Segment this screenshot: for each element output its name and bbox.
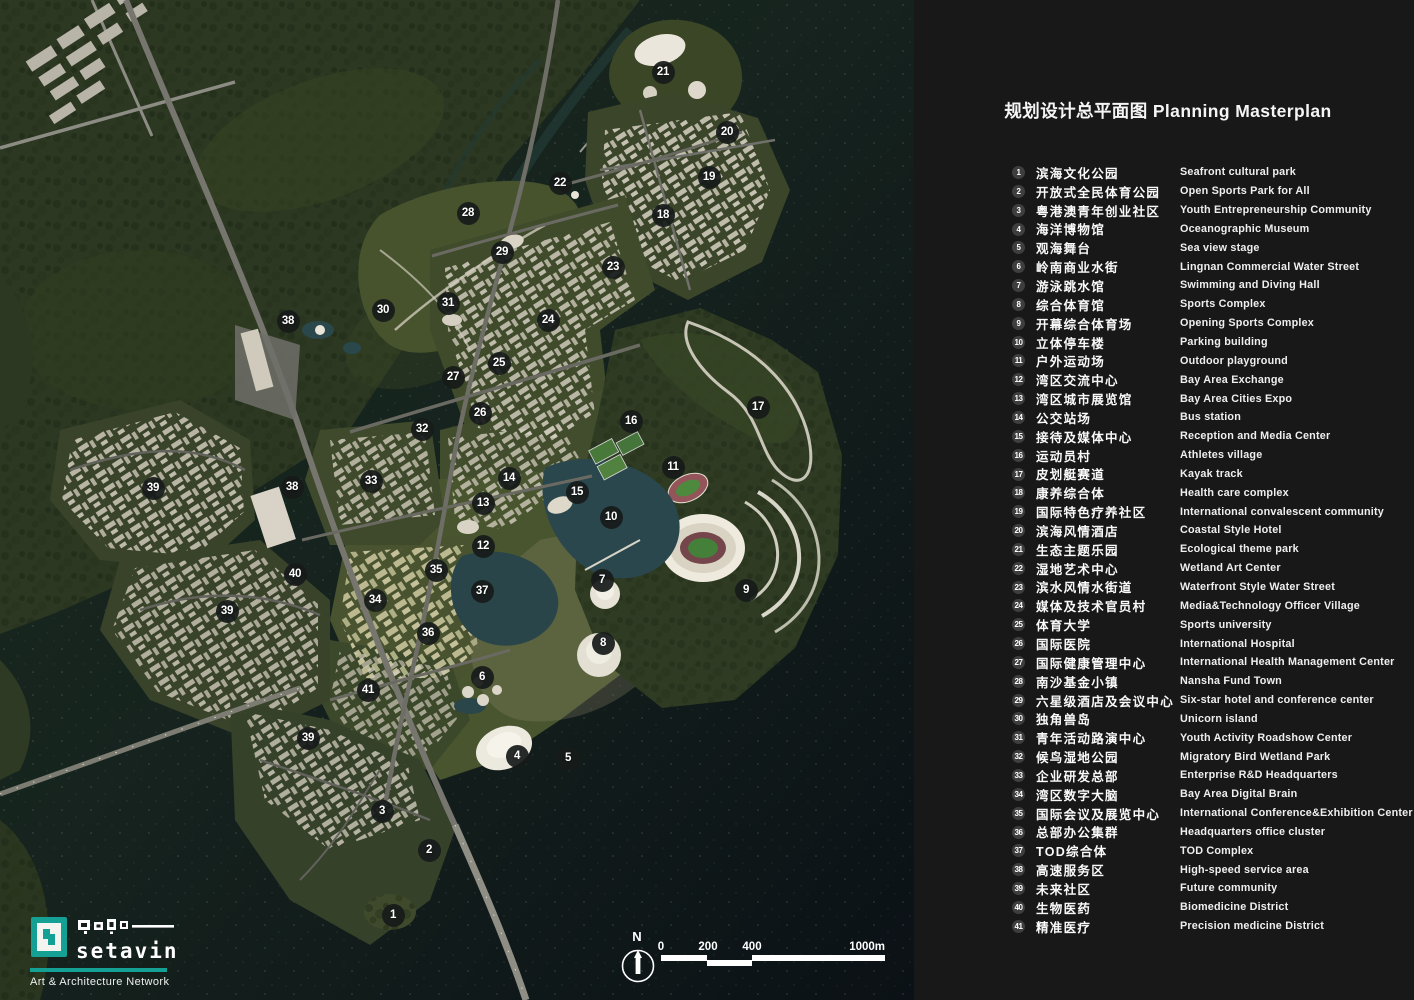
logo-wordmark: setavin <box>76 941 179 962</box>
legend-number-badge: 25 <box>1012 618 1025 631</box>
legend-name-zh: 企业研发总部 <box>1036 766 1119 785</box>
legend-name-en: Seafront cultural park <box>1180 166 1296 178</box>
legend-name-zh: 未来社区 <box>1036 879 1091 898</box>
legend-row: 6岭南商业水街Lingnan Commercial Water Street <box>914 257 1414 276</box>
legend-number-badge: 20 <box>1012 524 1025 537</box>
legend-list: 1滨海文化公园Seafront cultural park2开放式全民体育公园O… <box>914 163 1414 936</box>
legend-name-en: Oceanographic Museum <box>1180 223 1309 235</box>
legend-name-en: Parking building <box>1180 336 1268 348</box>
legend-name-en: TOD Complex <box>1180 845 1253 857</box>
map-marker-16: 16 <box>620 410 643 433</box>
legend-name-zh: 总部办公集群 <box>1036 822 1119 841</box>
legend-row: 11户外运动场Outdoor playground <box>914 351 1414 370</box>
legend-name-en: Youth Entrepreneurship Community <box>1180 204 1372 216</box>
legend-name-en: Youth Activity Roadshow Center <box>1180 732 1352 744</box>
legend-row: 23滨水风情水街道Waterfront Style Water Street <box>914 578 1414 597</box>
legend-row: 9开幕综合体育场Opening Sports Complex <box>914 314 1414 333</box>
legend-number-badge: 11 <box>1012 354 1025 367</box>
map-marker-7: 7 <box>591 569 614 592</box>
legend-row: 8综合体育馆Sports Complex <box>914 295 1414 314</box>
legend-name-zh: 皮划艇赛道 <box>1036 464 1105 483</box>
scale-bar: 0 200 400 1000m <box>653 938 893 977</box>
legend-row: 31青年活动路演中心Youth Activity Roadshow Center <box>914 728 1414 747</box>
svg-text:1000m: 1000m <box>849 941 885 953</box>
legend-number-badge: 3 <box>1012 204 1025 217</box>
legend-row: 26国际医院International Hospital <box>914 634 1414 653</box>
map-marker-23: 23 <box>602 256 625 279</box>
legend-name-zh: 国际健康管理中心 <box>1036 653 1146 672</box>
legend-number-badge: 28 <box>1012 675 1025 688</box>
legend-row: 16运动员村Athletes village <box>914 446 1414 465</box>
legend-number-badge: 27 <box>1012 656 1025 669</box>
legend-row: 15接待及媒体中心Reception and Media Center <box>914 427 1414 446</box>
legend-name-en: International convalescent community <box>1180 506 1384 518</box>
legend-row: 3粤港澳青年创业社区Youth Entrepreneurship Communi… <box>914 201 1414 220</box>
legend-number-badge: 4 <box>1012 223 1025 236</box>
legend-name-zh: 体育大学 <box>1036 615 1091 634</box>
legend-name-zh: 滨海风情酒店 <box>1036 521 1119 540</box>
legend-row: 5观海舞台Sea view stage <box>914 238 1414 257</box>
legend-name-en: Media&Technology Officer Village <box>1180 600 1360 612</box>
legend-name-zh: 康养综合体 <box>1036 483 1105 502</box>
north-arrow: N <box>618 928 658 993</box>
svg-text:200: 200 <box>698 941 717 953</box>
legend-row: 33企业研发总部Enterprise R&D Headquarters <box>914 766 1414 785</box>
legend-number-badge: 6 <box>1012 260 1025 273</box>
legend-name-en: International Conference&Exhibition Cent… <box>1180 807 1413 819</box>
logo-icon <box>30 916 68 963</box>
legend-name-zh: 滨水风情水街道 <box>1036 577 1133 596</box>
legend-name-zh: 观海舞台 <box>1036 238 1091 257</box>
legend-number-badge: 34 <box>1012 788 1025 801</box>
legend-row: 27国际健康管理中心International Health Managemen… <box>914 653 1414 672</box>
legend-name-en: Opening Sports Complex <box>1180 317 1314 329</box>
legend-name-en: Sports university <box>1180 619 1272 631</box>
legend-number-badge: 10 <box>1012 336 1025 349</box>
legend-name-en: Athletes village <box>1180 449 1262 461</box>
map-marker-27: 27 <box>442 366 465 389</box>
map-marker-39: 39 <box>142 477 165 500</box>
legend-row: 40生物医药Biomedicine District <box>914 898 1414 917</box>
legend-name-zh: 粤港澳青年创业社区 <box>1036 201 1160 220</box>
legend-name-en: Ecological theme park <box>1180 543 1299 555</box>
legend-number-badge: 12 <box>1012 373 1025 386</box>
legend-name-en: Headquarters office cluster <box>1180 826 1325 838</box>
legend-name-zh: 综合体育馆 <box>1036 295 1105 314</box>
map-marker-39: 39 <box>297 727 320 750</box>
legend-number-badge: 9 <box>1012 317 1025 330</box>
map-marker-35: 35 <box>425 559 448 582</box>
map-marker-17: 17 <box>747 396 770 419</box>
legend-name-zh: 运动员村 <box>1036 446 1091 465</box>
legend-name-zh: 国际医院 <box>1036 634 1091 653</box>
svg-text:0: 0 <box>658 941 664 953</box>
legend-name-en: Bay Area Exchange <box>1180 374 1284 386</box>
legend-number-badge: 15 <box>1012 430 1025 443</box>
legend-number-badge: 36 <box>1012 826 1025 839</box>
masterplan-poster: 1234567891011121314151617181920212223242… <box>0 0 1414 1000</box>
legend-name-en: Waterfront Style Water Street <box>1180 581 1335 593</box>
legend-name-zh: 岭南商业水街 <box>1036 257 1119 276</box>
logo-tagline: Art & Architecture Network <box>30 976 240 988</box>
legend-panel: 规划设计总平面图 Planning Masterplan 1滨海文化公园Seaf… <box>914 0 1414 1000</box>
map-illustration <box>0 0 914 1000</box>
legend-row: 34湾区数字大脑Bay Area Digital Brain <box>914 785 1414 804</box>
legend-row: 2开放式全民体育公园Open Sports Park for All <box>914 182 1414 201</box>
map-marker-38: 38 <box>281 476 304 499</box>
legend-name-zh: 候鸟湿地公园 <box>1036 747 1119 766</box>
legend-row: 13湾区城市展览馆Bay Area Cities Expo <box>914 389 1414 408</box>
logo: setavin Art & Architecture Network <box>30 916 240 988</box>
legend-name-zh: 湾区城市展览馆 <box>1036 389 1133 408</box>
legend-row: 1滨海文化公园Seafront cultural park <box>914 163 1414 182</box>
map-marker-31: 31 <box>437 292 460 315</box>
legend-name-en: Bus station <box>1180 411 1241 423</box>
legend-name-zh: 滨海文化公园 <box>1036 163 1119 182</box>
map-marker-40: 40 <box>284 563 307 586</box>
legend-row: 20滨海风情酒店Coastal Style Hotel <box>914 521 1414 540</box>
legend-name-en: Bay Area Cities Expo <box>1180 393 1292 405</box>
legend-number-badge: 17 <box>1012 468 1025 481</box>
legend-name-zh: 开放式全民体育公园 <box>1036 182 1160 201</box>
legend-name-en: Future community <box>1180 882 1277 894</box>
legend-row: 17皮划艇赛道Kayak track <box>914 465 1414 484</box>
map-marker-21: 21 <box>652 61 675 84</box>
legend-name-zh: 生物医药 <box>1036 898 1091 917</box>
legend-number-badge: 24 <box>1012 599 1025 612</box>
map-marker-3: 3 <box>371 800 394 823</box>
legend-row: 19国际特色疗养社区International convalescent com… <box>914 502 1414 521</box>
map-marker-30: 30 <box>372 299 395 322</box>
legend-row: 39未来社区Future community <box>914 879 1414 898</box>
map-marker-2: 2 <box>418 839 441 862</box>
legend-row: 12湾区交流中心Bay Area Exchange <box>914 370 1414 389</box>
legend-name-en: Precision medicine District <box>1180 920 1324 932</box>
legend-number-badge: 22 <box>1012 562 1025 575</box>
legend-row: 37TOD综合体TOD Complex <box>914 841 1414 860</box>
north-label: N <box>632 929 641 944</box>
legend-row: 38高速服务区High-speed service area <box>914 860 1414 879</box>
map-marker-41: 41 <box>357 679 380 702</box>
legend-number-badge: 26 <box>1012 637 1025 650</box>
legend-name-zh: 游泳跳水馆 <box>1036 276 1105 295</box>
legend-number-badge: 33 <box>1012 769 1025 782</box>
legend-name-zh: 湿地艺术中心 <box>1036 559 1119 578</box>
legend-row: 14公交站场Bus station <box>914 408 1414 427</box>
legend-name-en: High-speed service area <box>1180 864 1309 876</box>
legend-name-en: Coastal Style Hotel <box>1180 524 1282 536</box>
legend-name-en: Health care complex <box>1180 487 1289 499</box>
legend-name-zh: 湾区交流中心 <box>1036 370 1119 389</box>
legend-number-badge: 16 <box>1012 449 1025 462</box>
map-marker-8: 8 <box>592 632 615 655</box>
legend-name-zh: 海洋博物馆 <box>1036 219 1105 238</box>
map-marker-6: 6 <box>471 666 494 689</box>
map-marker-1: 1 <box>382 904 405 927</box>
legend-name-zh: 户外运动场 <box>1036 351 1105 370</box>
legend-row: 30独角兽岛Unicorn island <box>914 709 1414 728</box>
map-marker-11: 11 <box>662 456 685 479</box>
map-marker-33: 33 <box>360 470 383 493</box>
legend-name-zh: 开幕综合体育场 <box>1036 314 1133 333</box>
legend-number-badge: 38 <box>1012 863 1025 876</box>
legend-name-en: Outdoor playground <box>1180 355 1288 367</box>
legend-name-zh: 国际特色疗养社区 <box>1036 502 1146 521</box>
legend-name-en: International Health Management Center <box>1180 656 1395 668</box>
legend-name-zh: 精准医疗 <box>1036 917 1091 936</box>
logo-accent-bar <box>30 968 167 972</box>
legend-number-badge: 23 <box>1012 581 1025 594</box>
map-marker-37: 37 <box>471 580 494 603</box>
map-marker-20: 20 <box>716 121 739 144</box>
legend-number-badge: 29 <box>1012 694 1025 707</box>
legend-name-en: Sea view stage <box>1180 242 1260 254</box>
legend-number-badge: 2 <box>1012 185 1025 198</box>
legend-number-badge: 5 <box>1012 241 1025 254</box>
legend-name-zh: 国际会议及展览中心 <box>1036 804 1160 823</box>
map-marker-29: 29 <box>491 241 514 264</box>
legend-row: 25体育大学Sports university <box>914 615 1414 634</box>
legend-row: 21生态主题乐园Ecological theme park <box>914 540 1414 559</box>
legend-name-zh: 接待及媒体中心 <box>1036 427 1133 446</box>
legend-name-zh: TOD综合体 <box>1036 841 1107 860</box>
legend-name-zh: 南沙基金小镇 <box>1036 672 1119 691</box>
legend-row: 24媒体及技术官员村Media&Technology Officer Villa… <box>914 596 1414 615</box>
legend-row: 41精准医疗Precision medicine District <box>914 917 1414 936</box>
legend-name-zh: 生态主题乐园 <box>1036 540 1119 559</box>
legend-row: 22湿地艺术中心Wetland Art Center <box>914 559 1414 578</box>
legend-row: 28南沙基金小镇Nansha Fund Town <box>914 672 1414 691</box>
map-marker-9: 9 <box>735 579 758 602</box>
map-marker-13: 13 <box>472 492 495 515</box>
legend-number-badge: 30 <box>1012 712 1025 725</box>
legend-name-zh: 六星级酒店及会议中心 <box>1036 691 1174 710</box>
map-marker-39: 39 <box>216 600 239 623</box>
legend-row: 36总部办公集群Headquarters office cluster <box>914 823 1414 842</box>
map-marker-36: 36 <box>417 622 440 645</box>
map-marker-28: 28 <box>457 202 480 225</box>
legend-name-en: Biomedicine District <box>1180 901 1288 913</box>
svg-text:400: 400 <box>742 941 761 953</box>
legend-row: 35国际会议及展览中心International Conference&Exhi… <box>914 804 1414 823</box>
legend-name-en: Unicorn island <box>1180 713 1258 725</box>
page-title: 规划设计总平面图 Planning Masterplan <box>978 98 1358 123</box>
map-marker-10: 10 <box>600 506 623 529</box>
legend-row: 10立体停车楼Parking building <box>914 333 1414 352</box>
logo-arabic-mark <box>76 919 179 939</box>
legend-number-badge: 35 <box>1012 807 1025 820</box>
legend-name-en: Wetland Art Center <box>1180 562 1281 574</box>
legend-name-en: Bay Area Digital Brain <box>1180 788 1297 800</box>
legend-name-en: Reception and Media Center <box>1180 430 1330 442</box>
map-marker-34: 34 <box>364 589 387 612</box>
legend-name-zh: 高速服务区 <box>1036 860 1105 879</box>
legend-row: 29六星级酒店及会议中心Six-star hotel and conferenc… <box>914 691 1414 710</box>
map-marker-19: 19 <box>698 166 721 189</box>
legend-name-zh: 立体停车楼 <box>1036 333 1105 352</box>
legend-name-en: International Hospital <box>1180 638 1295 650</box>
legend-number-badge: 41 <box>1012 920 1025 933</box>
legend-number-badge: 19 <box>1012 505 1025 518</box>
legend-number-badge: 32 <box>1012 750 1025 763</box>
legend-number-badge: 37 <box>1012 844 1025 857</box>
legend-name-en: Nansha Fund Town <box>1180 675 1282 687</box>
legend-name-en: Open Sports Park for All <box>1180 185 1310 197</box>
legend-name-zh: 公交站场 <box>1036 408 1091 427</box>
legend-name-en: Sports Complex <box>1180 298 1266 310</box>
map-marker-14: 14 <box>498 467 521 490</box>
legend-number-badge: 7 <box>1012 279 1025 292</box>
legend-name-zh: 湾区数字大脑 <box>1036 785 1119 804</box>
legend-number-badge: 1 <box>1012 166 1025 179</box>
legend-row: 18康养综合体Health care complex <box>914 483 1414 502</box>
legend-name-zh: 独角兽岛 <box>1036 709 1091 728</box>
legend-name-en: Swimming and Diving Hall <box>1180 279 1320 291</box>
map-marker-4: 4 <box>506 745 529 768</box>
map-marker-22: 22 <box>549 172 572 195</box>
legend-number-badge: 40 <box>1012 901 1025 914</box>
map-marker-38: 38 <box>277 310 300 333</box>
map-marker-18: 18 <box>652 204 675 227</box>
map-marker-15: 15 <box>566 481 589 504</box>
legend-row: 32候鸟湿地公园Migratory Bird Wetland Park <box>914 747 1414 766</box>
legend-number-badge: 14 <box>1012 411 1025 424</box>
legend-name-en: Lingnan Commercial Water Street <box>1180 261 1359 273</box>
map-marker-32: 32 <box>411 418 434 441</box>
legend-number-badge: 8 <box>1012 298 1025 311</box>
legend-name-en: Migratory Bird Wetland Park <box>1180 751 1330 763</box>
map-marker-12: 12 <box>472 535 495 558</box>
map-marker-24: 24 <box>537 309 560 332</box>
legend-number-badge: 21 <box>1012 543 1025 556</box>
map-marker-26: 26 <box>469 402 492 425</box>
legend-row: 4海洋博物馆Oceanographic Museum <box>914 220 1414 239</box>
map-marker-25: 25 <box>488 352 511 375</box>
legend-name-zh: 青年活动路演中心 <box>1036 728 1146 747</box>
legend-name-zh: 媒体及技术官员村 <box>1036 596 1146 615</box>
legend-name-en: Six-star hotel and conference center <box>1180 694 1374 706</box>
legend-name-en: Enterprise R&D Headquarters <box>1180 769 1338 781</box>
legend-number-badge: 13 <box>1012 392 1025 405</box>
masterplan-map: 1234567891011121314151617181920212223242… <box>0 0 914 1000</box>
legend-row: 7游泳跳水馆Swimming and Diving Hall <box>914 276 1414 295</box>
legend-number-badge: 18 <box>1012 486 1025 499</box>
legend-name-en: Kayak track <box>1180 468 1243 480</box>
legend-number-badge: 39 <box>1012 882 1025 895</box>
map-marker-5: 5 <box>557 747 580 770</box>
legend-number-badge: 31 <box>1012 731 1025 744</box>
